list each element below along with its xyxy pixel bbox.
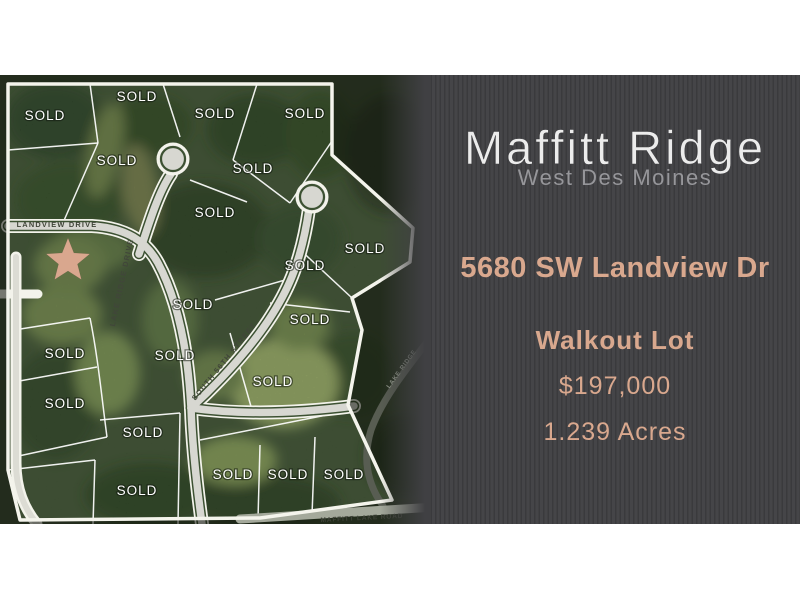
sold-label: SOLD	[345, 241, 386, 256]
sold-label: SOLD	[97, 153, 138, 168]
sold-label: SOLD	[117, 89, 158, 104]
sold-label: SOLD	[45, 346, 86, 361]
sold-label: SOLD	[253, 374, 294, 389]
sold-label: SOLD	[233, 161, 274, 176]
sold-label: SOLD	[268, 467, 309, 482]
sold-label: SOLD	[123, 425, 164, 440]
marketing-slide: LANDVIEW DRIVELAKE RIDGE DRIVESOUTH 56TH…	[0, 0, 800, 600]
listing-panel: Maffitt Ridge West Des Moines 5680 SW La…	[430, 75, 800, 524]
cul-de-sac-north	[158, 144, 188, 174]
sold-label: SOLD	[213, 467, 254, 482]
plat-map-container: LANDVIEW DRIVELAKE RIDGE DRIVESOUTH 56TH…	[0, 75, 430, 524]
listing-address: 5680 SW Landview Dr	[430, 252, 800, 285]
sold-label: SOLD	[155, 348, 196, 363]
cul-de-sac-east	[297, 182, 327, 212]
sold-label: SOLD	[290, 312, 331, 327]
lot-type: Walkout Lot	[430, 325, 800, 356]
development-city: West Des Moines	[430, 165, 800, 191]
sold-label: SOLD	[45, 396, 86, 411]
sold-label: SOLD	[195, 106, 236, 121]
street-label: LANDVIEW DRIVE	[17, 220, 98, 229]
sold-label: SOLD	[324, 467, 365, 482]
sold-label: SOLD	[25, 108, 66, 123]
lot-price: $197,000	[430, 372, 800, 401]
sold-label: SOLD	[285, 258, 326, 273]
sold-label: SOLD	[195, 205, 236, 220]
sold-label: SOLD	[117, 483, 158, 498]
plat-map: LANDVIEW DRIVELAKE RIDGE DRIVESOUTH 56TH…	[0, 75, 430, 524]
lot-acreage: 1.239 Acres	[430, 418, 800, 447]
sold-label: SOLD	[285, 106, 326, 121]
sold-label: SOLD	[173, 297, 214, 312]
